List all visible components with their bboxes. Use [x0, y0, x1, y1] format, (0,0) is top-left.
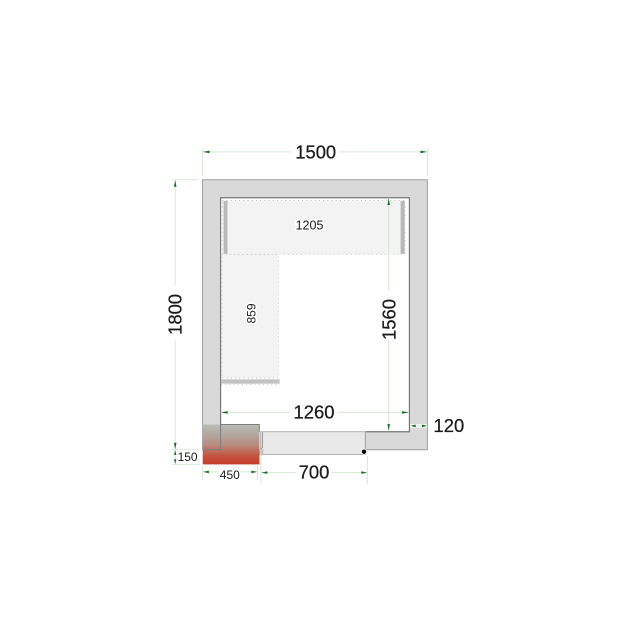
svg-text:1205: 1205 [296, 218, 324, 232]
svg-text:1500: 1500 [295, 142, 336, 163]
svg-text:450: 450 [220, 468, 240, 482]
svg-text:859: 859 [245, 303, 259, 323]
svg-text:700: 700 [299, 462, 330, 483]
svg-text:150: 150 [178, 450, 198, 464]
svg-text:1560: 1560 [378, 299, 399, 340]
svg-text:1260: 1260 [294, 402, 335, 423]
svg-text:120: 120 [434, 415, 465, 436]
svg-text:1800: 1800 [164, 294, 185, 335]
